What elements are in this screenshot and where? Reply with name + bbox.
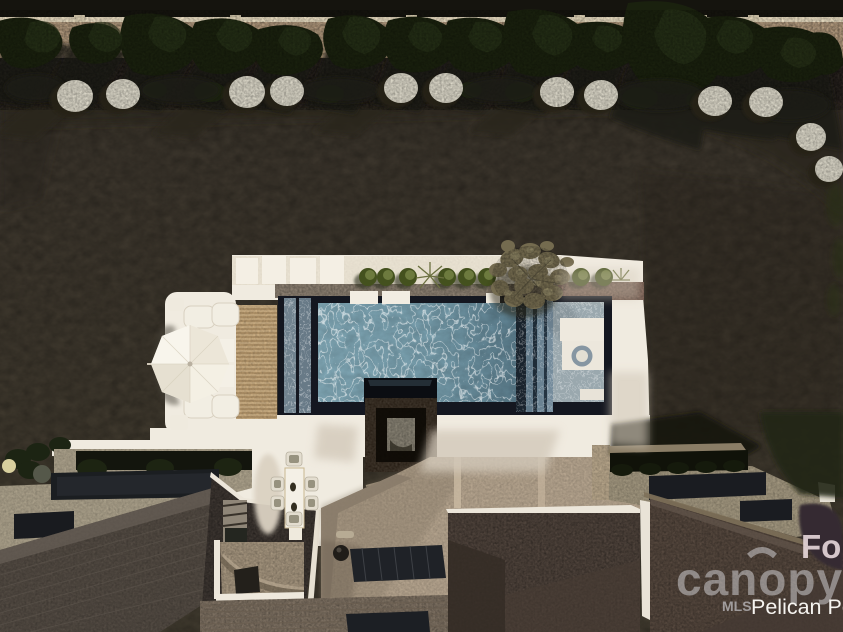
svg-text:Pelican Po: Pelican Po [751,595,843,619]
svg-text:MLS: MLS [722,598,752,614]
